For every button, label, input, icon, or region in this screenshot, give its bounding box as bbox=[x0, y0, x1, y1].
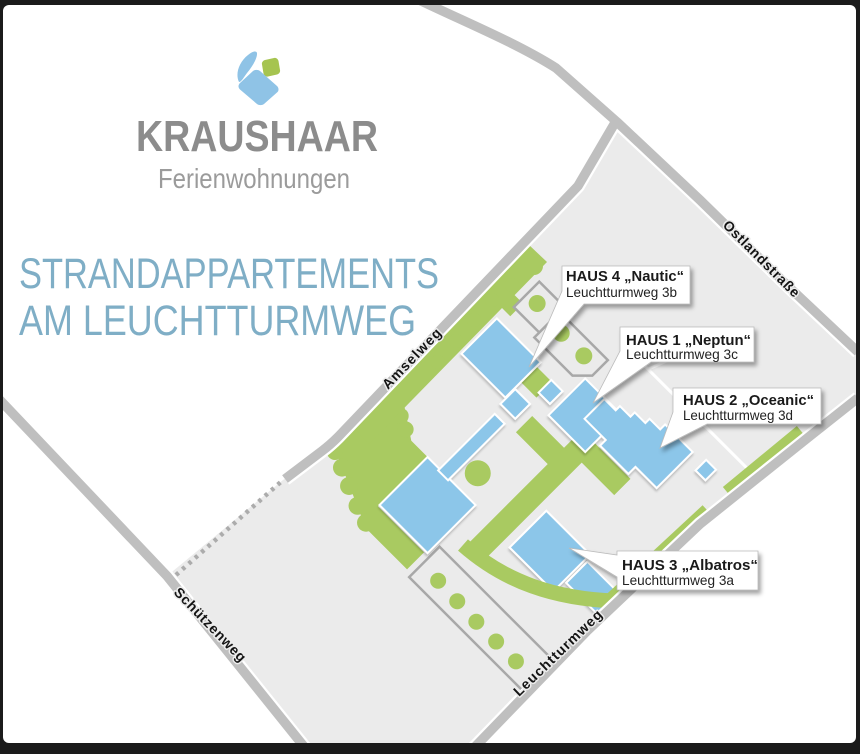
svg-text:Leuchtturmweg 3a: Leuchtturmweg 3a bbox=[622, 572, 734, 588]
svg-text:KRAUSHAAR: KRAUSHAAR bbox=[136, 112, 378, 161]
svg-text:Ferienwohnungen: Ferienwohnungen bbox=[158, 163, 350, 194]
svg-text:HAUS 4 „Nautic“: HAUS 4 „Nautic“ bbox=[566, 268, 684, 285]
svg-text:Leuchtturmweg 3d: Leuchtturmweg 3d bbox=[683, 407, 793, 423]
svg-text:Leuchtturmweg 3c: Leuchtturmweg 3c bbox=[626, 346, 738, 362]
svg-text:STRANDAPPARTEMENTS: STRANDAPPARTEMENTS bbox=[19, 250, 439, 298]
svg-text:AM LEUCHTTURMWEG: AM LEUCHTTURMWEG bbox=[19, 297, 416, 345]
svg-text:Leuchtturmweg 3b: Leuchtturmweg 3b bbox=[566, 284, 677, 300]
